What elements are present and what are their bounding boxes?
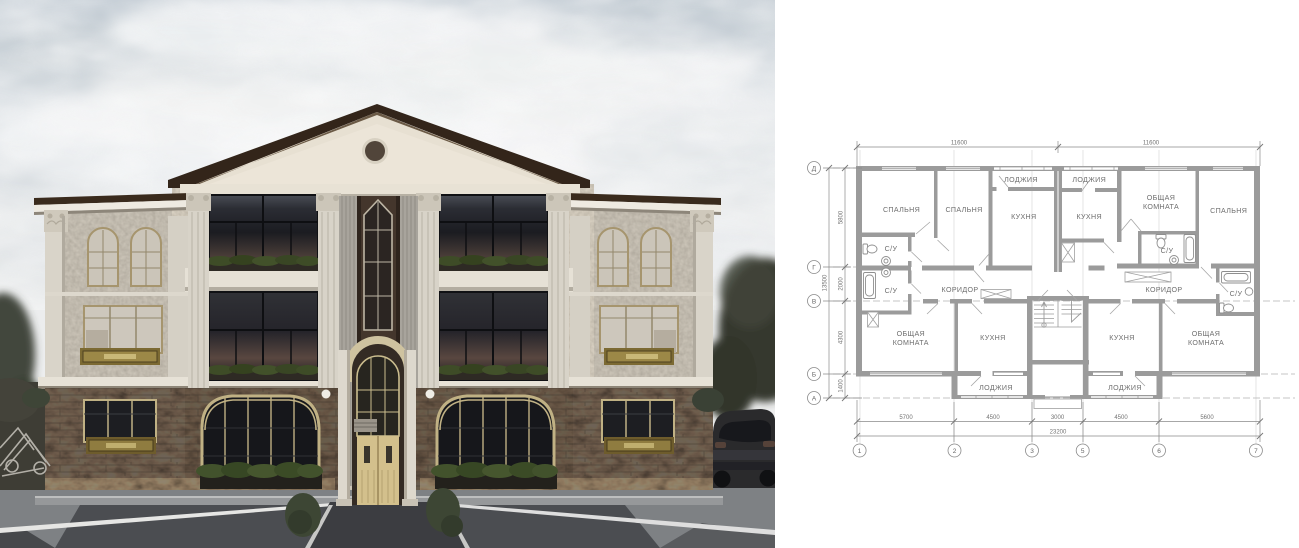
svg-text:5600: 5600 bbox=[1200, 415, 1214, 421]
svg-text:С/У: С/У bbox=[1161, 247, 1174, 255]
svg-text:23200: 23200 bbox=[1050, 430, 1067, 436]
svg-text:4500: 4500 bbox=[986, 415, 1000, 421]
svg-text:11600: 11600 bbox=[1143, 141, 1160, 147]
svg-text:ОБЩАЯ: ОБЩАЯ bbox=[1192, 330, 1220, 338]
svg-text:В: В bbox=[812, 298, 816, 305]
svg-text:С/У: С/У bbox=[885, 245, 898, 253]
svg-text:КОРИДОР: КОРИДОР bbox=[942, 286, 979, 294]
svg-text:СПАЛЬНЯ: СПАЛЬНЯ bbox=[883, 206, 920, 214]
svg-text:1400: 1400 bbox=[839, 379, 845, 393]
svg-text:11600: 11600 bbox=[951, 141, 968, 147]
svg-text:ОБЩАЯ: ОБЩАЯ bbox=[1147, 194, 1175, 202]
svg-text:ЛОДЖИЯ: ЛОДЖИЯ bbox=[1072, 176, 1106, 184]
svg-text:5700: 5700 bbox=[899, 415, 913, 421]
svg-text:5: 5 bbox=[1081, 448, 1085, 455]
svg-text:КУХНЯ: КУХНЯ bbox=[980, 334, 1005, 342]
svg-text:СПАЛЬНЯ: СПАЛЬНЯ bbox=[1210, 207, 1247, 215]
svg-text:13500: 13500 bbox=[823, 274, 829, 291]
svg-text:3000: 3000 bbox=[1051, 415, 1065, 421]
svg-text:ЛОДЖИЯ: ЛОДЖИЯ bbox=[1108, 384, 1142, 392]
svg-text:КУХНЯ: КУХНЯ bbox=[1076, 213, 1101, 221]
svg-text:4500: 4500 bbox=[1114, 415, 1128, 421]
svg-text:С/У: С/У bbox=[1230, 290, 1243, 298]
svg-text:КУХНЯ: КУХНЯ bbox=[1011, 213, 1036, 221]
svg-text:А: А bbox=[812, 395, 817, 402]
svg-text:Д: Д bbox=[812, 165, 817, 172]
svg-text:Г: Г bbox=[812, 264, 816, 271]
svg-text:СПАЛЬНЯ: СПАЛЬНЯ bbox=[945, 206, 982, 214]
svg-text:5800: 5800 bbox=[839, 210, 845, 224]
svg-text:2000: 2000 bbox=[839, 277, 845, 291]
svg-text:КОМНАТА: КОМНАТА bbox=[1188, 339, 1224, 347]
svg-text:ОБЩАЯ: ОБЩАЯ bbox=[897, 330, 925, 338]
svg-text:КОМНАТА: КОМНАТА bbox=[893, 339, 929, 347]
svg-text:КУХНЯ: КУХНЯ bbox=[1109, 334, 1134, 342]
svg-text:Б: Б bbox=[812, 371, 816, 378]
svg-text:4300: 4300 bbox=[839, 330, 845, 344]
svg-text:2: 2 bbox=[953, 448, 957, 455]
svg-text:КОМНАТА: КОМНАТА bbox=[1143, 203, 1179, 211]
svg-text:ЛОДЖИЯ: ЛОДЖИЯ bbox=[1004, 176, 1038, 184]
svg-text:КОРИДОР: КОРИДОР bbox=[1146, 286, 1183, 294]
svg-text:ЛОДЖИЯ: ЛОДЖИЯ bbox=[979, 384, 1013, 392]
svg-text:6: 6 bbox=[1157, 448, 1161, 455]
svg-text:7: 7 bbox=[1254, 448, 1258, 455]
svg-text:1: 1 bbox=[858, 448, 862, 455]
svg-text:3: 3 bbox=[1030, 448, 1034, 455]
svg-text:С/У: С/У bbox=[885, 287, 898, 295]
